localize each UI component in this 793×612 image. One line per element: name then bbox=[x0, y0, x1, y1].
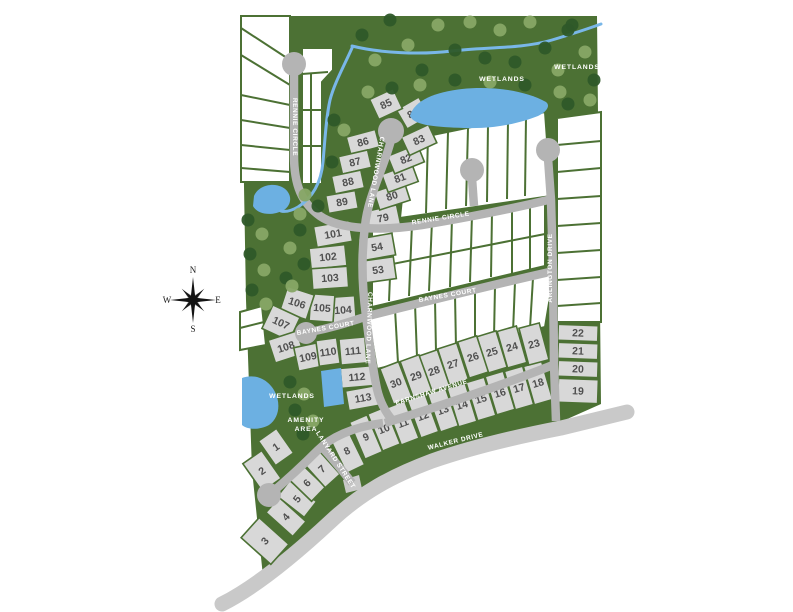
lot-112: 112 bbox=[340, 366, 374, 389]
lot-102: 102 bbox=[309, 245, 347, 270]
tree-icon bbox=[286, 280, 299, 293]
tree-icon bbox=[260, 298, 273, 311]
tree-icon bbox=[284, 376, 297, 389]
lot-number: 102 bbox=[319, 251, 338, 265]
lot-divider bbox=[455, 295, 456, 347]
tree-icon bbox=[244, 248, 257, 261]
tree-icon bbox=[554, 86, 567, 99]
lot-number: 103 bbox=[321, 272, 339, 285]
tree-icon bbox=[588, 74, 601, 87]
tree-icon bbox=[294, 208, 307, 221]
tree-icon bbox=[299, 189, 312, 202]
area-label: AREA bbox=[295, 426, 318, 433]
street-label: ARLINGTON DRIVE bbox=[547, 233, 554, 302]
compass-letter: N bbox=[190, 265, 197, 275]
tree-icon bbox=[524, 16, 537, 29]
lot-22: 22 bbox=[558, 324, 599, 341]
culdesac bbox=[536, 138, 560, 162]
tree-icon bbox=[449, 44, 462, 57]
lot-divider bbox=[435, 300, 436, 352]
lot-number: 105 bbox=[313, 302, 331, 315]
tree-icon bbox=[312, 200, 325, 213]
lot-20: 20 bbox=[558, 360, 599, 377]
tree-icon bbox=[579, 46, 592, 59]
tree-icon bbox=[449, 74, 462, 87]
area-label: WETLANDS bbox=[269, 393, 315, 400]
tree-icon bbox=[338, 124, 351, 137]
tree-icon bbox=[384, 14, 397, 27]
tree-icon bbox=[584, 94, 597, 107]
tree-icon bbox=[432, 19, 445, 32]
pond bbox=[321, 368, 344, 407]
lot-number: 54 bbox=[370, 241, 384, 255]
tree-icon bbox=[256, 228, 269, 241]
lot-divider bbox=[525, 117, 526, 196]
lot-divider bbox=[494, 286, 495, 337]
tree-icon bbox=[326, 156, 339, 169]
tree-icon bbox=[539, 42, 552, 55]
area-label: WETLANDS bbox=[554, 64, 600, 71]
site-map-svg: 1234567891011121314151617181920212223242… bbox=[0, 0, 793, 612]
tree-icon bbox=[298, 258, 311, 271]
tree-icon bbox=[562, 24, 575, 37]
tree-icon bbox=[464, 16, 477, 29]
lot-110: 110 bbox=[316, 338, 340, 367]
compass-letter: E bbox=[215, 295, 221, 305]
compass-hub bbox=[188, 295, 198, 305]
tree-icon bbox=[479, 52, 492, 65]
lot-number: 20 bbox=[572, 363, 584, 375]
tree-icon bbox=[289, 404, 302, 417]
tree-icon bbox=[402, 39, 415, 52]
area-label: WETLANDS bbox=[479, 76, 525, 83]
compass-letter: W bbox=[163, 295, 172, 305]
culdesac bbox=[282, 52, 306, 76]
lot-number: 89 bbox=[335, 196, 349, 210]
culdesac bbox=[257, 483, 281, 507]
tree-icon bbox=[328, 114, 341, 127]
lot-divider bbox=[491, 212, 492, 277]
tree-icon bbox=[258, 264, 271, 277]
tree-icon bbox=[562, 98, 575, 111]
lot-21: 21 bbox=[558, 342, 599, 359]
tree-icon bbox=[369, 54, 382, 67]
road-court-stub bbox=[472, 178, 474, 206]
tree-icon bbox=[246, 284, 259, 297]
lot-number: 104 bbox=[334, 304, 352, 317]
tree-icon bbox=[362, 86, 375, 99]
lot-number: 53 bbox=[371, 264, 384, 278]
subdivision-site-plan: 1234567891011121314151617181920212223242… bbox=[0, 0, 793, 612]
tree-icon bbox=[494, 24, 507, 37]
tree-icon bbox=[284, 242, 297, 255]
compass-letter: S bbox=[190, 324, 195, 334]
tree-icon bbox=[386, 82, 399, 95]
tree-icon bbox=[416, 64, 429, 77]
tree-icon bbox=[242, 214, 255, 227]
compass-rose: NESW bbox=[163, 265, 222, 334]
culdesac bbox=[460, 158, 484, 182]
lot-19: 19 bbox=[558, 378, 599, 403]
street-label: RENNIE CIRCLE bbox=[291, 98, 298, 156]
lot-103: 103 bbox=[311, 266, 348, 289]
tree-icon bbox=[509, 56, 522, 69]
lot-divider bbox=[487, 124, 488, 202]
lot-number: 111 bbox=[344, 345, 362, 358]
lot-number: 110 bbox=[319, 345, 338, 359]
lot-number: 19 bbox=[572, 385, 584, 397]
tree-icon bbox=[414, 79, 427, 92]
tree-icon bbox=[294, 224, 307, 237]
lot-number: 22 bbox=[572, 327, 584, 339]
tree-icon bbox=[356, 29, 369, 42]
lot-number: 21 bbox=[572, 345, 584, 357]
lot-divider bbox=[507, 120, 508, 199]
lot-number: 112 bbox=[348, 371, 366, 384]
area-label: AMENITY bbox=[288, 417, 325, 424]
lot-111: 111 bbox=[339, 337, 367, 365]
